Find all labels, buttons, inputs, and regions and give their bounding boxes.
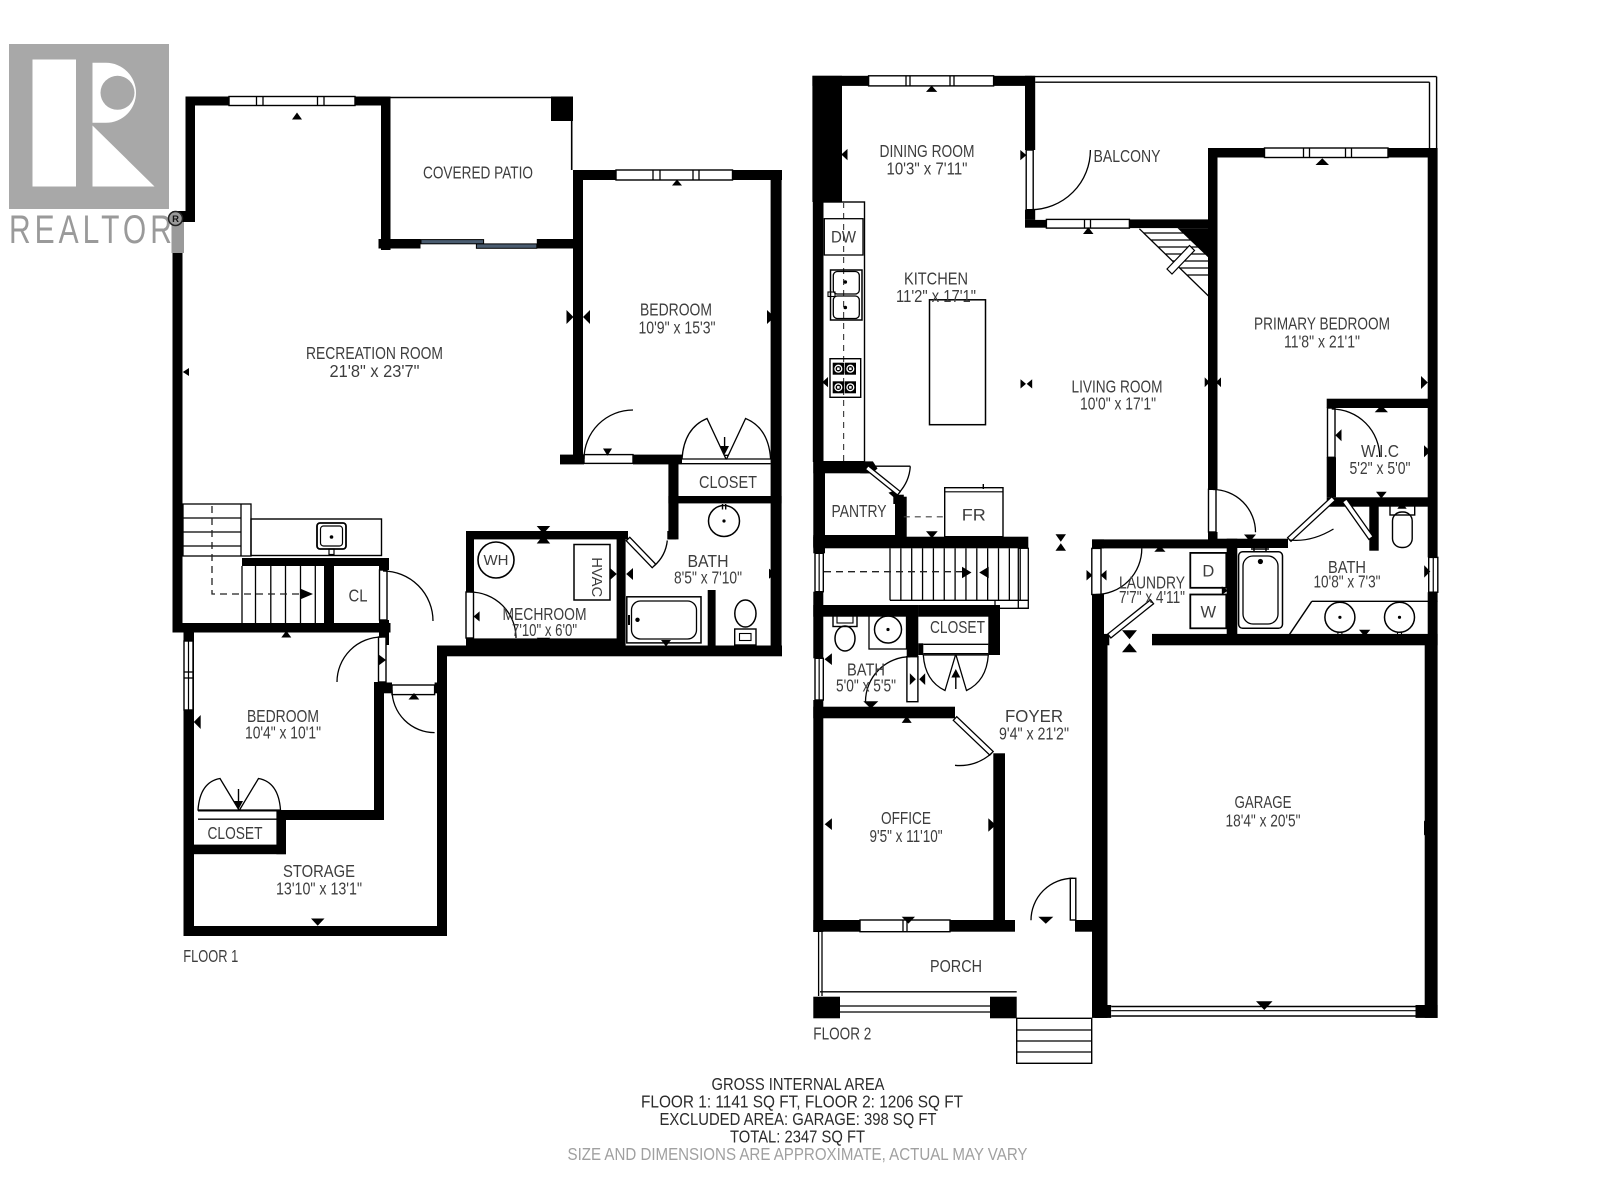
svg-text:PRIMARY BEDROOM: PRIMARY BEDROOM bbox=[1254, 313, 1390, 333]
svg-text:PANTRY: PANTRY bbox=[832, 501, 887, 521]
svg-text:18'4" x 20'5": 18'4" x 20'5" bbox=[1226, 810, 1301, 830]
svg-text:REALTOR: REALTOR bbox=[9, 208, 176, 252]
svg-text:7'10" x 6'0": 7'10" x 6'0" bbox=[512, 620, 577, 640]
svg-text:7'7" x 4'11": 7'7" x 4'11" bbox=[1119, 587, 1185, 607]
svg-text:FR: FR bbox=[962, 506, 986, 524]
svg-text:OFFICE: OFFICE bbox=[881, 808, 931, 828]
svg-text:10'9" x 15'3": 10'9" x 15'3" bbox=[639, 317, 716, 337]
svg-text:CLOSET: CLOSET bbox=[930, 617, 985, 637]
svg-text:5'2" x 5'0": 5'2" x 5'0" bbox=[1350, 458, 1411, 478]
svg-text:FLOOR 1: FLOOR 1 bbox=[183, 946, 238, 966]
svg-text:W: W bbox=[1201, 603, 1217, 621]
svg-text:CLOSET: CLOSET bbox=[208, 823, 263, 843]
svg-text:RECREATION ROOM: RECREATION ROOM bbox=[306, 343, 443, 363]
svg-text:CL: CL bbox=[349, 585, 368, 605]
svg-text:10'4" x 10'1": 10'4" x 10'1" bbox=[245, 722, 321, 742]
svg-text:10'3" x 7'11": 10'3" x 7'11" bbox=[887, 158, 968, 178]
svg-text:9'5" x 11'10": 9'5" x 11'10" bbox=[870, 826, 943, 846]
svg-text:11'2" x 17'1": 11'2" x 17'1" bbox=[896, 286, 976, 306]
svg-text:10'8" x 7'3": 10'8" x 7'3" bbox=[1314, 571, 1381, 591]
svg-text:SIZE AND DIMENSIONS ARE APPROX: SIZE AND DIMENSIONS ARE APPROXIMATE, ACT… bbox=[568, 1144, 1028, 1164]
svg-text:COVERED PATIO: COVERED PATIO bbox=[423, 162, 533, 182]
svg-text:21'8" x 23'7": 21'8" x 23'7" bbox=[330, 361, 420, 381]
svg-text:WH: WH bbox=[484, 553, 509, 569]
svg-text:13'10" x 13'1": 13'10" x 13'1" bbox=[276, 878, 362, 898]
svg-text:CLOSET: CLOSET bbox=[699, 472, 757, 492]
svg-text:D: D bbox=[1202, 562, 1214, 580]
svg-text:BEDROOM: BEDROOM bbox=[640, 299, 712, 319]
svg-text:DW: DW bbox=[831, 228, 856, 246]
svg-text:9'4" x 21'2": 9'4" x 21'2" bbox=[999, 723, 1069, 743]
svg-text:BALCONY: BALCONY bbox=[1094, 146, 1161, 166]
svg-text:PORCH: PORCH bbox=[930, 956, 982, 976]
svg-text:10'0" x 17'1": 10'0" x 17'1" bbox=[1080, 393, 1156, 413]
svg-text:HVAC: HVAC bbox=[588, 557, 604, 597]
svg-text:11'8" x 21'1": 11'8" x 21'1" bbox=[1284, 331, 1360, 351]
svg-text:GARAGE: GARAGE bbox=[1235, 792, 1292, 812]
svg-text:5'0" x 5'5": 5'0" x 5'5" bbox=[836, 675, 896, 695]
svg-text:8'5" x 7'10": 8'5" x 7'10" bbox=[674, 567, 742, 587]
svg-text:R: R bbox=[172, 214, 179, 225]
svg-text:FLOOR 2: FLOOR 2 bbox=[813, 1023, 871, 1043]
